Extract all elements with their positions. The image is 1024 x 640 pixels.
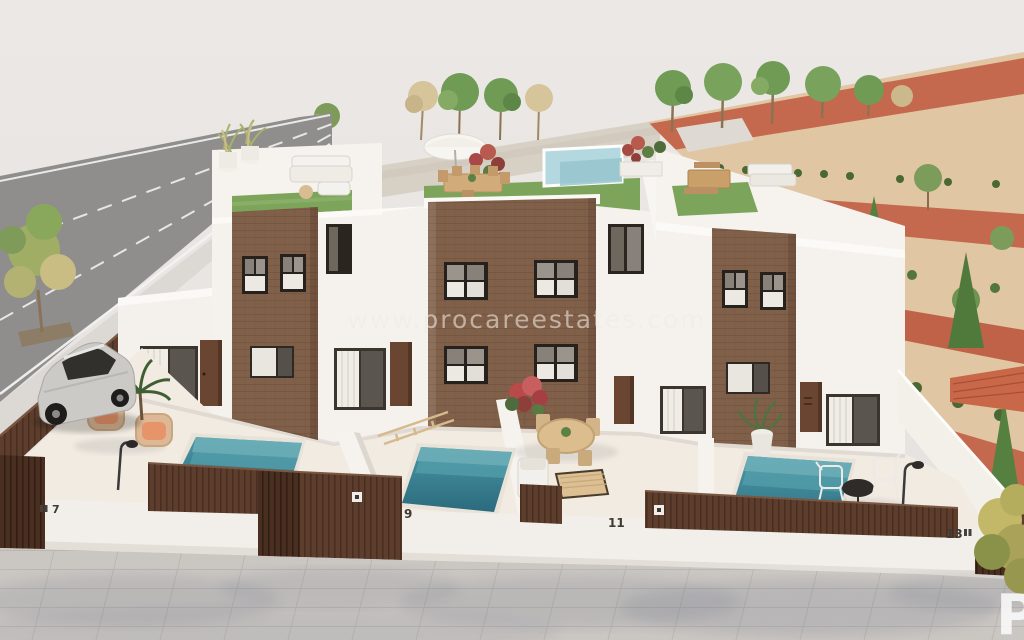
roof-sofa — [290, 156, 352, 199]
recessed-window — [250, 346, 294, 378]
roof-sofa — [748, 164, 796, 186]
fence — [520, 484, 562, 524]
window — [534, 344, 578, 382]
house-number-7: 7 — [52, 503, 60, 516]
house-number-9: 9 — [404, 507, 412, 521]
stairwell-window — [326, 224, 352, 274]
front-door — [800, 382, 822, 432]
stairwell-window — [608, 224, 644, 274]
house-number-13: 13 — [946, 527, 963, 541]
right-house — [656, 222, 905, 478]
window — [722, 270, 748, 308]
glass-slider — [660, 386, 706, 434]
gate — [0, 455, 45, 549]
coffee-table — [556, 470, 608, 498]
roof-pool — [544, 146, 622, 186]
watermark-corner-letter: P — [996, 583, 1024, 640]
watermark-text: www.procareestates.com — [347, 305, 706, 334]
front-door — [614, 376, 634, 424]
gate — [258, 469, 300, 557]
front-door — [390, 342, 412, 406]
window — [534, 260, 578, 298]
yard-wall — [698, 438, 714, 496]
architectural-render: www.procareestates.com 7 9 11 13 — [0, 0, 1024, 640]
house-number-11: 11 — [608, 516, 625, 530]
window — [242, 256, 268, 294]
pool-9 — [398, 443, 516, 516]
window — [444, 346, 488, 384]
front-door — [200, 340, 222, 406]
window — [444, 262, 488, 300]
recessed-window — [726, 362, 770, 394]
window — [760, 272, 786, 310]
glass-slider — [826, 394, 880, 446]
fence — [300, 472, 402, 560]
window — [280, 254, 306, 292]
glass-slider — [334, 348, 386, 410]
